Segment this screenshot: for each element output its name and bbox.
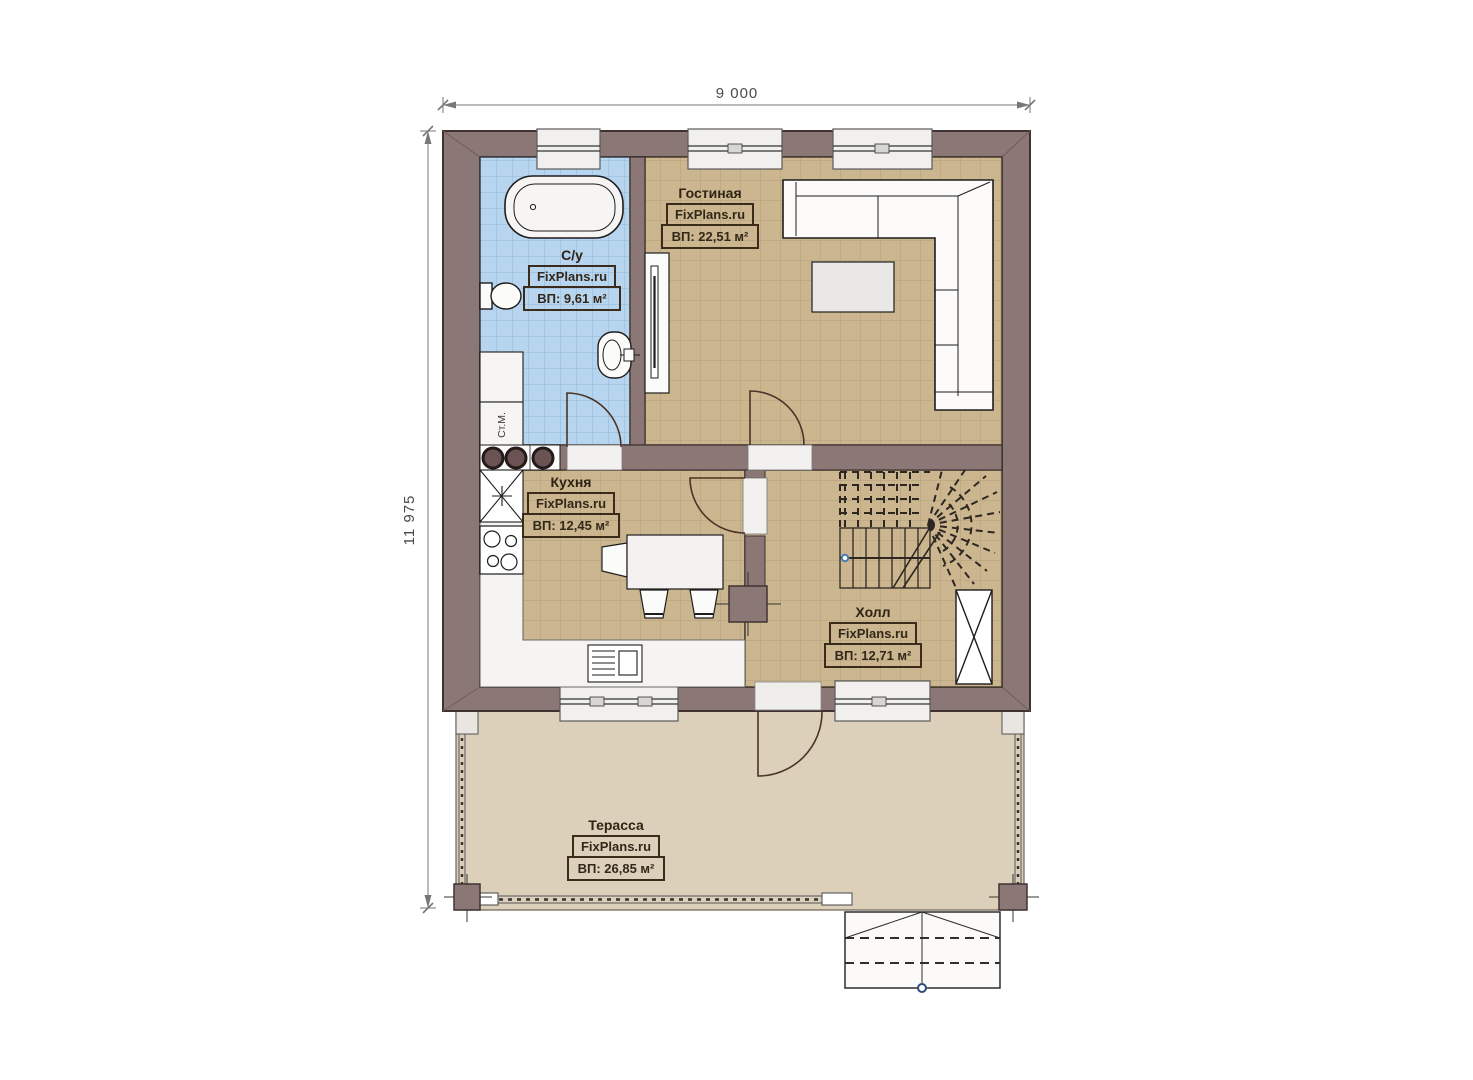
bathtub (505, 176, 623, 238)
wall-bath-living (630, 157, 645, 445)
washing-machine: Ст.М. (480, 352, 523, 449)
tv-stand (645, 253, 669, 393)
railing-cap-right (822, 893, 852, 905)
brand-bathroom: FixPlans.ru (537, 269, 607, 284)
area-kitchen: ВП: 12,45 м² (533, 518, 610, 533)
window-bottom-hall (835, 681, 930, 721)
brand-kitchen: FixPlans.ru (536, 496, 606, 511)
room-name-bathroom: С/у (561, 247, 583, 263)
terrace-door-opening (755, 682, 821, 710)
room-name-kitchen: Кухня (551, 474, 592, 490)
entrance-steps (845, 912, 1000, 992)
window-top-2 (688, 129, 782, 169)
area-hall: ВП: 12,71 м² (835, 648, 912, 663)
coffee-table (812, 262, 894, 312)
washing-machine-label: Ст.М. (496, 412, 508, 438)
floor-plan-canvas: Ст.М. (0, 0, 1473, 1080)
dishwasher (588, 645, 642, 682)
terrace-area (444, 708, 1039, 992)
area-living: ВП: 22,51 м² (672, 229, 749, 244)
area-bathroom: ВП: 9,61 м² (537, 291, 607, 306)
brand-living: FixPlans.ru (675, 207, 745, 222)
dimension-left-value: 11 975 (401, 495, 418, 546)
window-top-3 (833, 129, 932, 169)
kitchen-sink (480, 470, 523, 522)
room-name-living: Гостиная (678, 185, 741, 201)
hall-wardrobe (956, 590, 992, 684)
dimension-top-value: 9 000 (716, 85, 759, 102)
stove (480, 526, 523, 574)
terrace-slab (456, 708, 1024, 910)
floor-plan-svg: Ст.М. (0, 0, 1473, 1080)
brand-hall: FixPlans.ru (838, 626, 908, 641)
brand-terrace: FixPlans.ru (581, 839, 651, 854)
dimension-left: 11 975 (401, 126, 436, 913)
room-name-hall: Холл (855, 604, 890, 620)
cooktop-counter-circles (480, 445, 560, 470)
steps-reference-dot (918, 984, 926, 992)
window-top-1 (537, 129, 600, 169)
wall-kitchen-hall-top (745, 470, 765, 478)
dining-table (627, 535, 723, 589)
dimension-top: 9 000 (438, 85, 1035, 113)
toilet (480, 283, 521, 309)
room-name-terrace: Терасса (588, 817, 644, 833)
area-terrace: ВП: 26,85 м² (578, 861, 655, 876)
chair-left (602, 543, 627, 577)
